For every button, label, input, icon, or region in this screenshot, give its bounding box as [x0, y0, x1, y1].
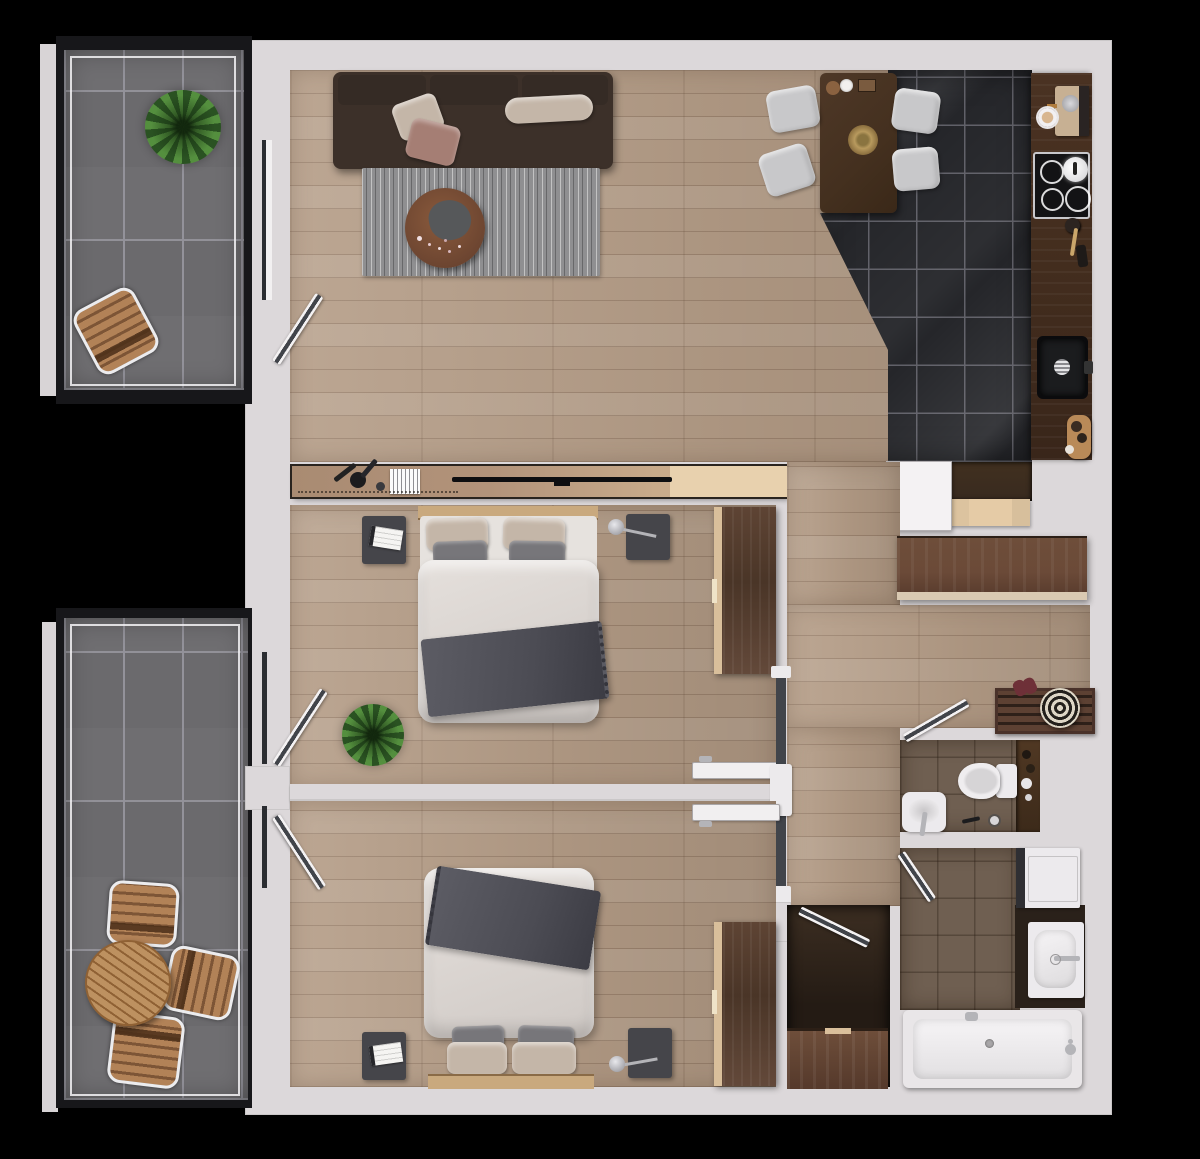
wc-vanity	[1016, 740, 1040, 832]
bed2-footboard	[428, 1074, 594, 1089]
vanity-item-dark	[1022, 750, 1031, 759]
door-handle	[699, 756, 712, 762]
washer-lid-line	[1028, 856, 1078, 902]
coffee-machine-body	[1079, 86, 1089, 136]
table-centerpiece	[848, 125, 878, 155]
coffee-table-tray	[425, 196, 474, 244]
bed2-nightstand-left	[362, 1032, 406, 1080]
bed2-pillow	[512, 1042, 576, 1074]
bathtub-drain	[985, 1039, 994, 1048]
terrace-bottom-left	[40, 608, 252, 1112]
kettle	[1063, 157, 1088, 182]
dining-chair	[890, 87, 941, 135]
utensil-dark	[1076, 244, 1089, 267]
cabinet-notch	[825, 1028, 851, 1034]
magazines	[369, 526, 404, 551]
bedroom2-hall-door	[692, 804, 780, 821]
door-handle	[699, 821, 712, 827]
hall-floor-upper	[787, 462, 900, 605]
balcony-outer-edge	[40, 44, 57, 396]
potted-plant	[145, 90, 221, 164]
bed1-nightstand-left	[362, 516, 406, 564]
washer-panel	[1016, 848, 1025, 908]
console-dotted-edge	[298, 491, 458, 493]
table-tray	[858, 79, 876, 92]
sofa	[333, 72, 613, 169]
wc-basin	[902, 792, 946, 832]
vanity-item-dark	[1026, 764, 1035, 773]
burner	[1041, 188, 1064, 211]
bath-sink-counter	[1028, 922, 1084, 998]
sideboard-base-strip	[897, 592, 1087, 600]
closet-cabinet	[787, 1028, 888, 1089]
tv-stand-foot	[554, 482, 570, 486]
kettle-knob	[1073, 162, 1077, 175]
bedroom1-plant	[342, 704, 404, 766]
dining-chair	[891, 146, 940, 192]
balcony-top-left	[40, 36, 252, 404]
bedroom1-hall-door	[692, 762, 780, 779]
partition-connector	[771, 666, 791, 678]
sink-strainer	[1054, 359, 1070, 375]
dining-chair	[765, 84, 822, 134]
entry-bench	[949, 499, 1030, 526]
round-basket	[1040, 688, 1080, 728]
vanity-item-white-small	[1025, 794, 1032, 801]
living-window-sash	[266, 140, 272, 300]
bath-sink-drain	[1050, 954, 1061, 965]
wc-floor-item	[990, 816, 999, 825]
table-plate-wood	[826, 81, 840, 95]
hall-sideboard	[897, 536, 1087, 600]
bedroom-divider-wall-block	[245, 766, 290, 810]
kitchen-counter	[1031, 73, 1092, 460]
tv-console	[292, 466, 787, 497]
coffee-table-flowers	[417, 236, 422, 241]
bathtub-handle	[1065, 1044, 1076, 1055]
oil-bottle	[1077, 433, 1087, 443]
bed2-pillow	[447, 1042, 507, 1074]
washing-machine	[1016, 848, 1080, 908]
bedroom1-window-sill	[262, 652, 267, 764]
sofa-pillow-mauve	[404, 117, 462, 168]
bedroom2-wardrobe	[714, 922, 776, 1086]
sofa-bolster-pillow	[504, 94, 593, 125]
bed1-lamp	[608, 519, 624, 535]
magazines	[369, 1042, 403, 1066]
burner	[1065, 186, 1091, 212]
coffee-table	[405, 188, 485, 268]
sofa-back-cushion	[430, 75, 518, 105]
bed1-nightstand-right	[626, 514, 670, 560]
bed2-nightstand-right	[628, 1028, 672, 1078]
bathtub-basin	[913, 1019, 1072, 1079]
wardrobe-handle	[712, 990, 717, 1014]
terrace-round-table	[85, 940, 171, 1026]
burner	[1040, 160, 1064, 184]
hall-floor-lower	[787, 728, 900, 906]
cooktop	[1033, 152, 1090, 219]
bed2-lamp	[609, 1056, 625, 1072]
coffee-cup	[1038, 108, 1057, 127]
terrace-chair-top	[106, 880, 180, 949]
bedroom2-window-sill	[262, 806, 267, 888]
bedroom1-wardrobe	[714, 507, 776, 674]
bathtub	[903, 1010, 1082, 1088]
toilet-bowl	[958, 763, 1000, 799]
coffee-machine-dial	[1062, 95, 1079, 112]
table-plate	[840, 79, 853, 92]
floor-plan-canvas	[0, 0, 1200, 1159]
coffee-machine	[1055, 86, 1089, 136]
console-decor-dot	[376, 482, 385, 491]
oil-bottle	[1071, 421, 1082, 432]
bedroom-divider-wall	[290, 784, 778, 801]
terrace-chair-right	[160, 943, 242, 1022]
console-light-section	[670, 466, 787, 497]
bathtub-faucet	[965, 1012, 978, 1021]
kitchen-sink	[1037, 336, 1088, 399]
vanity-item-white	[1021, 778, 1032, 789]
entry-mat	[948, 462, 1032, 501]
sink-faucet	[1084, 361, 1093, 374]
dining-table	[820, 73, 897, 213]
garlic	[1065, 445, 1074, 454]
wardrobe-handle	[712, 579, 717, 603]
